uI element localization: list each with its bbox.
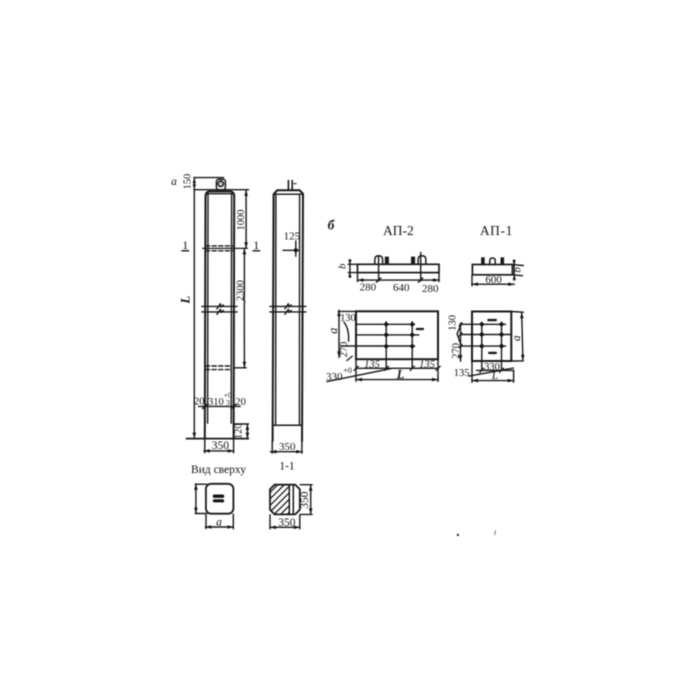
svg-text:270: 270	[451, 343, 462, 359]
svg-text:a: a	[216, 516, 222, 528]
svg-text:20: 20	[235, 397, 246, 408]
svg-text:350: 350	[279, 441, 296, 453]
svg-text:1: 1	[253, 238, 259, 252]
svg-text:135: 135	[364, 359, 380, 370]
svg-text:b: b	[336, 263, 348, 269]
svg-text:20: 20	[194, 397, 205, 408]
svg-text:350: 350	[299, 491, 311, 509]
svg-text:1-1: 1-1	[279, 461, 295, 473]
svg-text:a: a	[171, 176, 177, 188]
svg-text:150: 150	[183, 174, 194, 190]
svg-text:135: 135	[454, 368, 470, 379]
svg-text:L: L	[396, 367, 405, 381]
svg-text:АП-1: АП-1	[480, 223, 513, 238]
svg-text:1000: 1000	[236, 210, 247, 231]
svg-text:L: L	[491, 370, 498, 382]
svg-text:125: 125	[284, 230, 301, 242]
svg-text:АП-2: АП-2	[383, 223, 414, 238]
svg-text:270: 270	[339, 342, 350, 358]
svg-text:640: 640	[393, 282, 410, 294]
svg-text:120: 120	[234, 423, 245, 439]
svg-text:280: 280	[360, 282, 377, 294]
svg-text:130: 130	[447, 315, 458, 331]
svg-text:Вид сверху: Вид сверху	[191, 464, 246, 476]
svg-text:a: a	[511, 335, 523, 341]
svg-text:3: 3	[226, 398, 230, 407]
svg-text:135: 135	[419, 359, 435, 370]
svg-text:600: 600	[485, 274, 502, 286]
svg-text:б: б	[328, 217, 336, 232]
svg-text:a: a	[326, 328, 340, 334]
svg-text:b: b	[511, 267, 523, 273]
svg-text:1: 1	[182, 238, 188, 252]
svg-text:310: 310	[208, 397, 224, 408]
svg-text:130: 130	[340, 313, 356, 324]
svg-text:280: 280	[422, 283, 439, 295]
svg-text:+0: +0	[343, 366, 352, 375]
svg-text:350: 350	[212, 440, 230, 452]
svg-text:330: 330	[326, 371, 343, 383]
svg-text:L: L	[177, 296, 192, 305]
svg-text:2300: 2300	[235, 280, 246, 301]
svg-text:350: 350	[278, 517, 296, 529]
